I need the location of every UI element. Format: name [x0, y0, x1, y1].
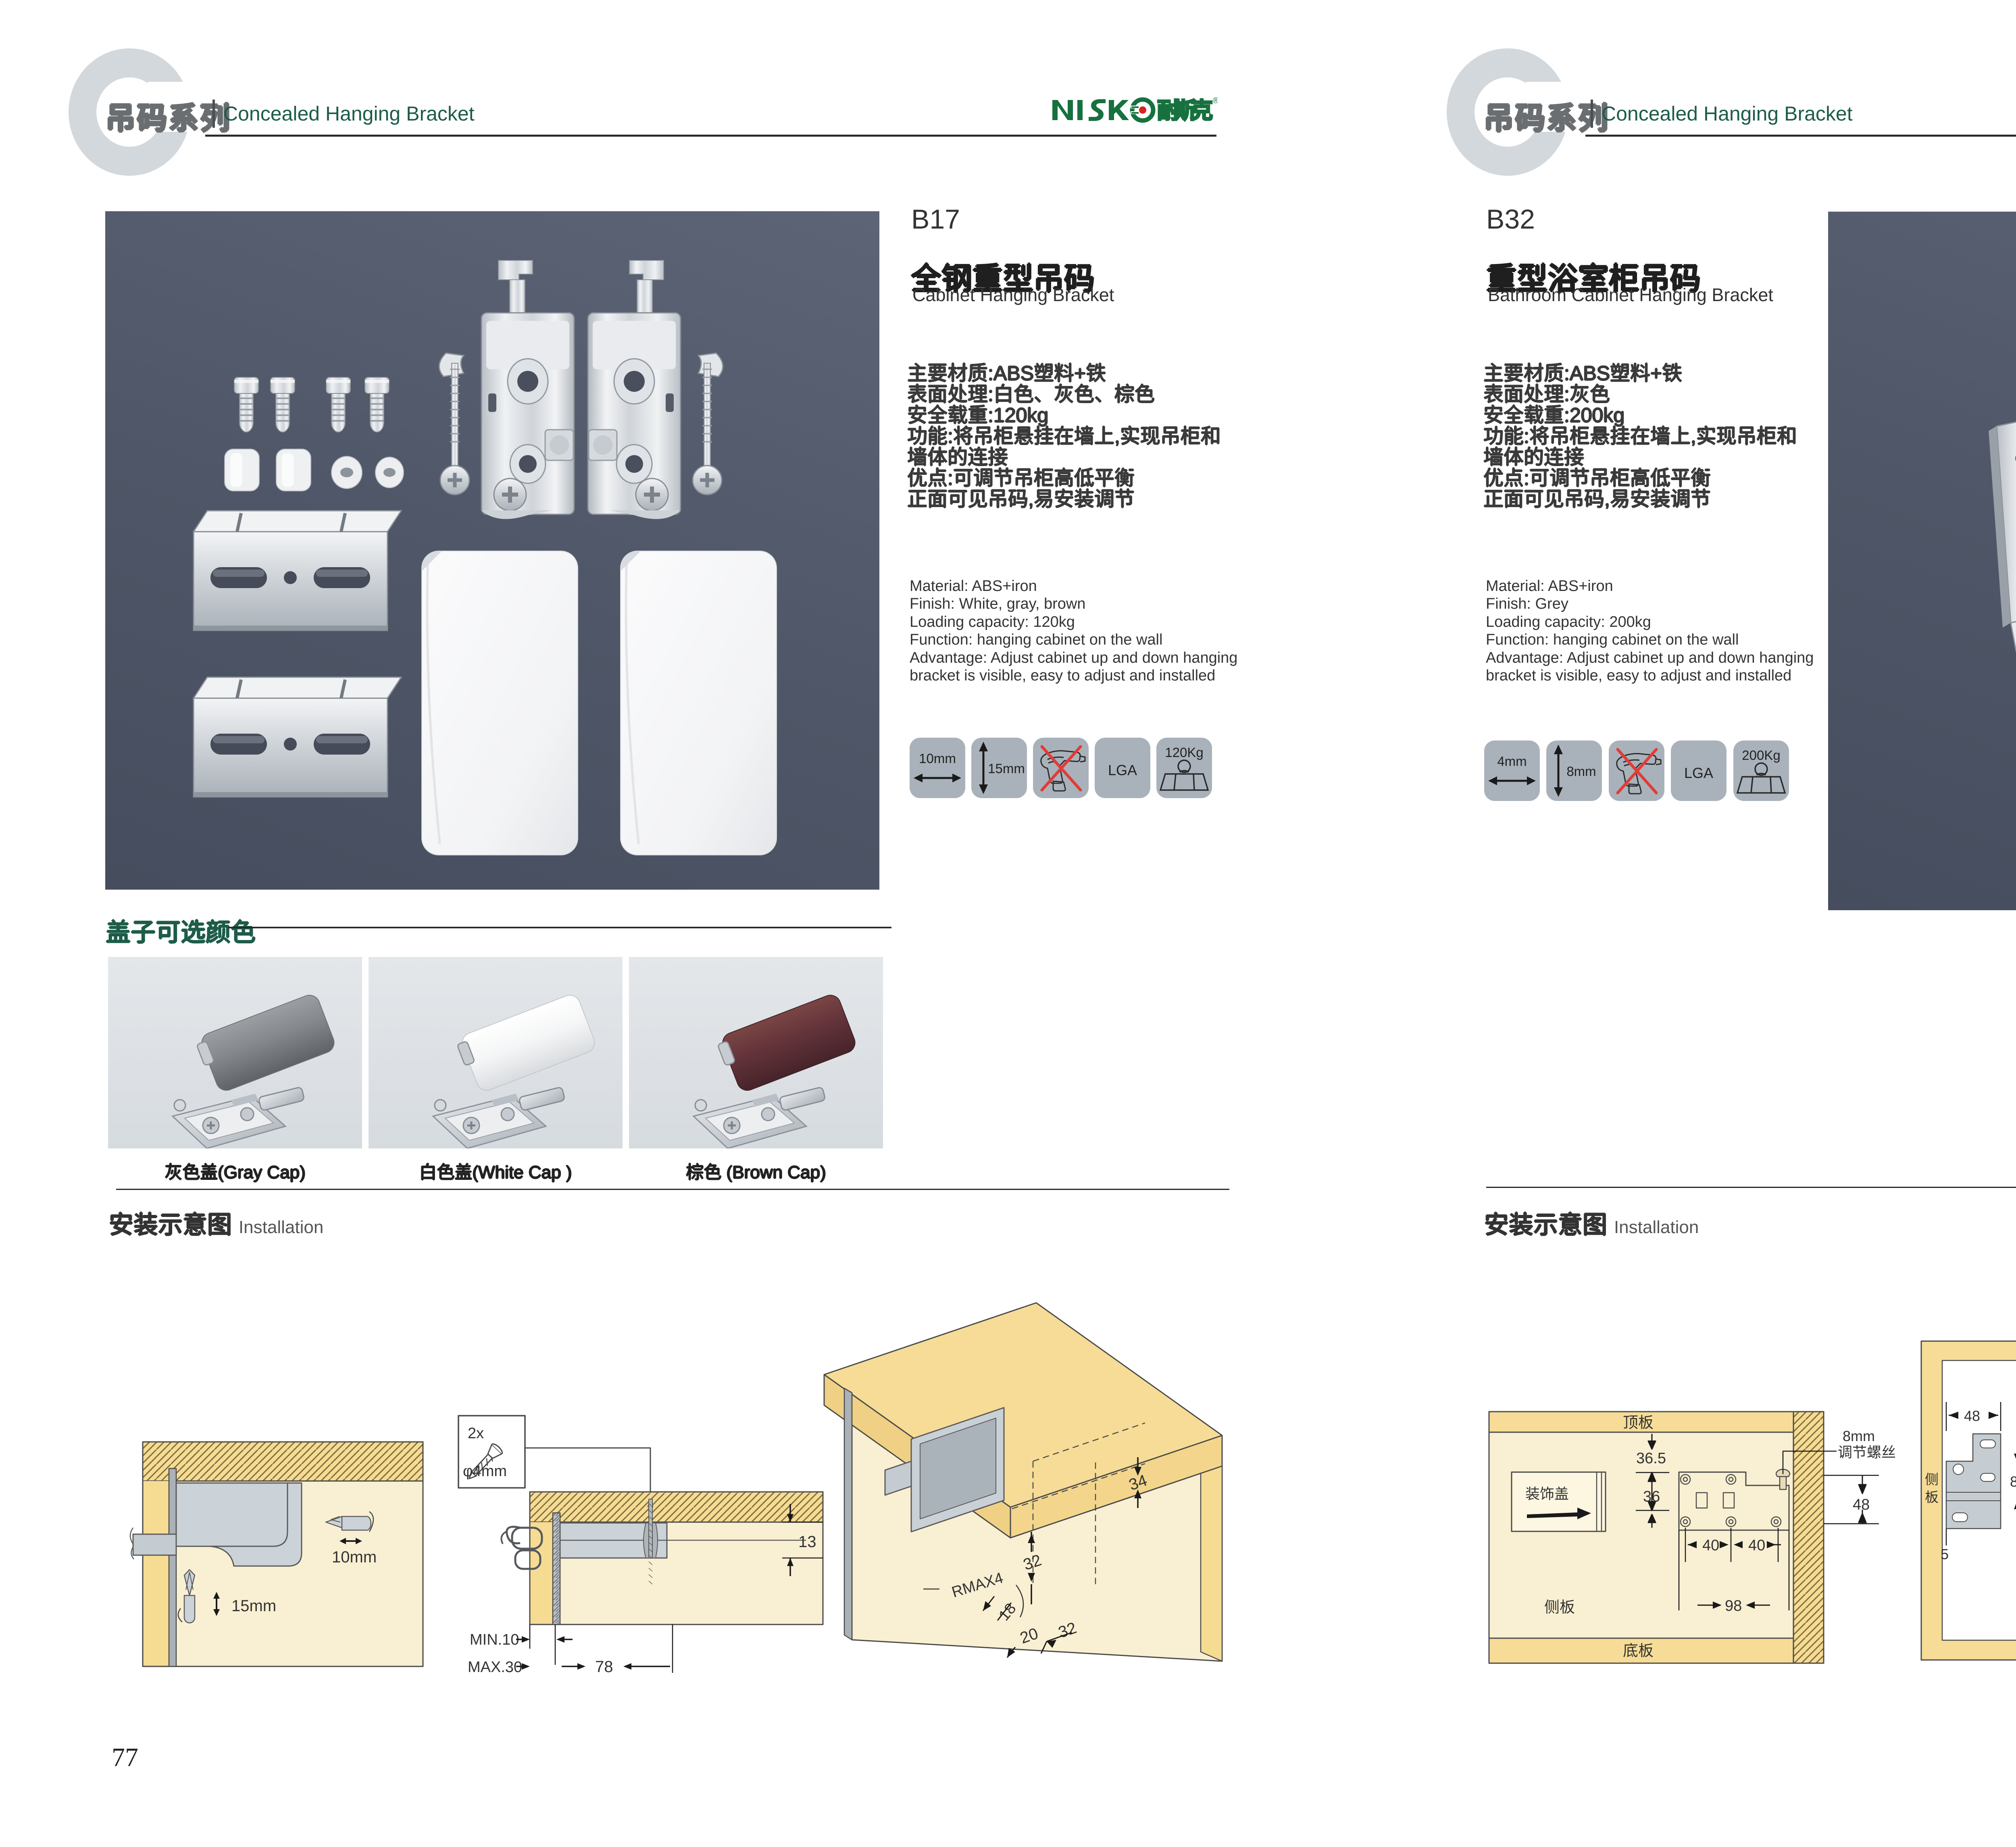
svg-text:13: 13	[798, 1533, 816, 1551]
svg-text:8mm: 8mm	[1843, 1428, 1875, 1444]
svg-text:40: 40	[1702, 1537, 1719, 1554]
svg-text:80: 80	[2010, 1473, 2016, 1490]
svg-text:侧板: 侧板	[1544, 1599, 1575, 1616]
svg-text:36: 36	[1643, 1488, 1660, 1505]
svg-text:10mm: 10mm	[332, 1548, 377, 1566]
svg-text:48: 48	[1964, 1408, 1980, 1424]
svg-text:78: 78	[595, 1658, 613, 1676]
svg-text:φ4mm: φ4mm	[463, 1463, 507, 1480]
svg-text:耐斯克: 耐斯克	[1157, 98, 1213, 123]
svg-text:®: ®	[1213, 97, 1218, 105]
svg-text:MIN.10: MIN.10	[470, 1631, 519, 1648]
svg-text:2x: 2x	[468, 1425, 484, 1442]
svg-text:MAX.30: MAX.30	[468, 1659, 522, 1676]
svg-text:板: 板	[1925, 1490, 1939, 1505]
svg-text:装饰盖: 装饰盖	[1525, 1485, 1569, 1502]
svg-text:48: 48	[1853, 1496, 1870, 1513]
svg-text:36.5: 36.5	[1636, 1450, 1666, 1467]
svg-text:顶板: 顶板	[1623, 1414, 1654, 1431]
svg-text:40: 40	[1748, 1537, 1765, 1554]
svg-text:98: 98	[1725, 1597, 1742, 1614]
svg-text:底板: 底板	[1623, 1643, 1654, 1660]
svg-text:15mm: 15mm	[231, 1597, 276, 1615]
svg-text:调节螺丝: 调节螺丝	[1838, 1444, 1896, 1460]
svg-text:5: 5	[1941, 1546, 1949, 1562]
svg-text:侧: 侧	[1925, 1472, 1939, 1487]
